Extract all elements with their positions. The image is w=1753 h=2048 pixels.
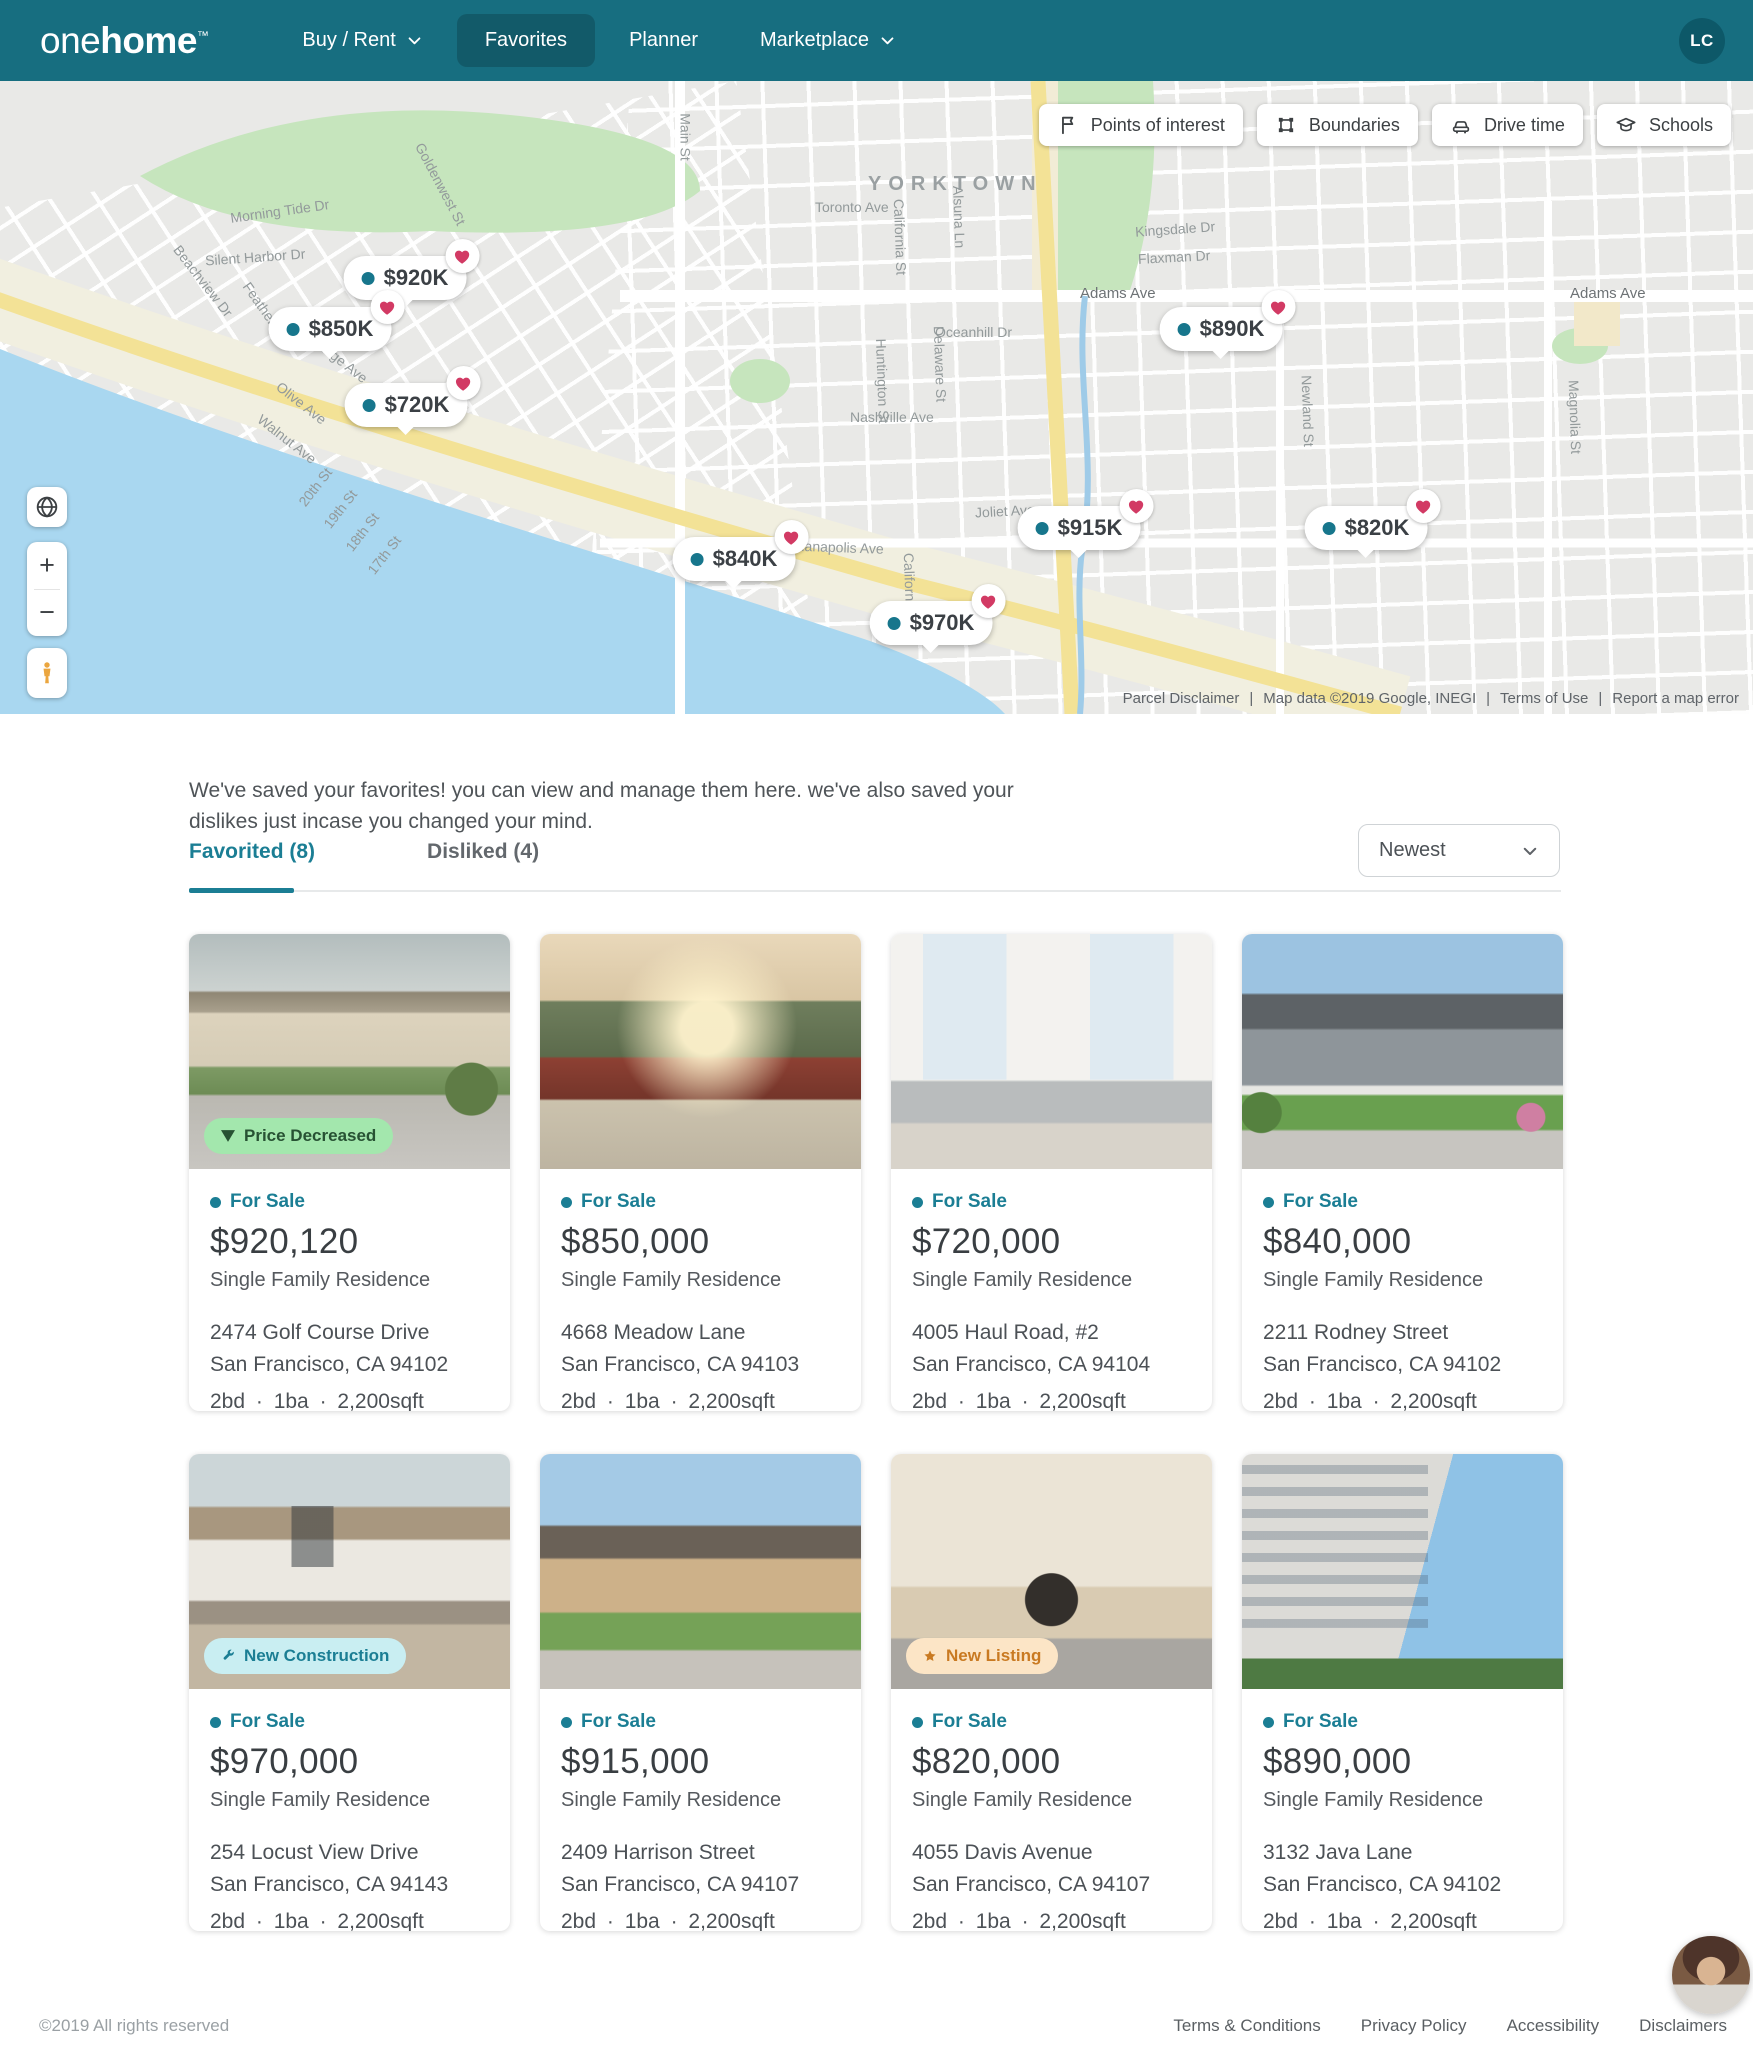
heart-icon bbox=[453, 247, 472, 266]
property-photo bbox=[1242, 1454, 1563, 1689]
schools-button[interactable]: Schools bbox=[1597, 104, 1731, 146]
map-price-pin[interactable]: $915K bbox=[1018, 506, 1141, 550]
pin-tail bbox=[1070, 549, 1088, 558]
street-label: Magnolia St bbox=[1566, 380, 1585, 454]
street-label: Newland St bbox=[1299, 375, 1317, 447]
user-avatar[interactable]: LC bbox=[1679, 18, 1725, 64]
favorite-button[interactable] bbox=[813, 1928, 840, 1931]
property-address: 4005 Haul Road, #2San Francisco, CA 9410… bbox=[912, 1317, 1191, 1381]
thumbs-down-icon bbox=[760, 1928, 787, 1931]
separator: | bbox=[1249, 690, 1253, 707]
nav-buy-rent[interactable]: Buy / Rent bbox=[274, 14, 450, 67]
favorite-button[interactable] bbox=[813, 1408, 840, 1411]
copyright-text: ©2019 All rights reserved bbox=[39, 2016, 229, 2036]
globe-icon bbox=[34, 494, 60, 520]
match-score: 82% bbox=[210, 1410, 285, 1412]
listing-price: $840,000 bbox=[1263, 1222, 1542, 1262]
house-icon bbox=[561, 1411, 583, 1412]
street-label: Adams Ave bbox=[1080, 285, 1156, 302]
tab-divider bbox=[189, 890, 1561, 892]
property-card[interactable]: For Sale $850,000 Single Family Residenc… bbox=[540, 934, 861, 1411]
street-label: Alsuna Ln bbox=[950, 186, 968, 249]
pin-dot-icon bbox=[1178, 323, 1191, 336]
property-address: 3132 Java LaneSan Francisco, CA 94102 bbox=[1263, 1837, 1542, 1901]
status-dot-icon bbox=[912, 1717, 923, 1728]
heart-icon bbox=[1515, 1408, 1542, 1411]
tab-disliked[interactable]: Disliked (4) bbox=[427, 840, 539, 864]
chevron-down-icon bbox=[1521, 842, 1539, 860]
favorite-button[interactable] bbox=[1164, 1928, 1191, 1931]
dislike-button[interactable] bbox=[409, 1928, 436, 1931]
favorite-button[interactable] bbox=[1515, 1928, 1542, 1931]
house-icon bbox=[912, 1931, 934, 1932]
property-card-grid: Price Decreased For Sale $920,120 Single… bbox=[189, 934, 1563, 1931]
map-price-pin[interactable]: $850K bbox=[269, 307, 392, 351]
dislike-button[interactable] bbox=[409, 1408, 436, 1411]
property-type: Single Family Residence bbox=[561, 1269, 840, 1292]
flag-icon bbox=[1057, 114, 1079, 136]
favorite-button[interactable] bbox=[462, 1928, 489, 1931]
map-tools: Points of interest Boundaries Drive time… bbox=[1039, 104, 1731, 146]
heart-badge bbox=[774, 520, 808, 554]
pin-tail bbox=[321, 350, 339, 359]
thumbs-down-icon bbox=[409, 1928, 436, 1931]
triangle-down-icon bbox=[221, 1129, 235, 1143]
map-price-pin[interactable]: $970K bbox=[870, 601, 993, 645]
listing-price: $920,120 bbox=[210, 1222, 489, 1262]
property-photo bbox=[1242, 934, 1563, 1169]
heart-icon bbox=[813, 1408, 840, 1411]
accessibility-link[interactable]: Accessibility bbox=[1507, 2016, 1600, 2036]
street-label: Nashville Ave bbox=[850, 409, 934, 425]
favorites-section: We've saved your favorites! you can view… bbox=[0, 714, 1753, 2048]
street-label: Adams Ave bbox=[1570, 285, 1646, 302]
listing-status: For Sale bbox=[912, 1711, 1191, 1733]
status-dot-icon bbox=[210, 1717, 221, 1728]
main-nav: Buy / Rent Favorites Planner Marketplace bbox=[274, 14, 924, 67]
property-photo: New Listing bbox=[891, 1454, 1212, 1689]
property-address: 254 Locust View DriveSan Francisco, CA 9… bbox=[210, 1837, 489, 1901]
dislike-button[interactable] bbox=[1111, 1408, 1138, 1411]
listing-status: For Sale bbox=[210, 1191, 489, 1213]
nav-favorites[interactable]: Favorites bbox=[457, 14, 595, 67]
street-label: Main St bbox=[678, 113, 694, 160]
property-address: 4055 Davis AvenueSan Francisco, CA 94107 bbox=[912, 1837, 1191, 1901]
graduation-cap-icon bbox=[1615, 114, 1637, 136]
zoom-in-button[interactable]: + bbox=[27, 543, 67, 589]
map-price-pin[interactable]: $820K bbox=[1305, 506, 1428, 550]
thumbs-down-icon bbox=[1462, 1408, 1489, 1411]
street-label: Toronto Ave bbox=[815, 199, 889, 215]
drive-time-button[interactable]: Drive time bbox=[1432, 104, 1583, 146]
pin-tail bbox=[397, 426, 415, 435]
property-card[interactable]: New Construction For Sale $970,000 Singl… bbox=[189, 1454, 510, 1931]
heart-badge bbox=[445, 239, 479, 273]
thumbs-down-icon bbox=[1462, 1928, 1489, 1931]
nav-marketplace[interactable]: Marketplace bbox=[732, 14, 924, 67]
terms-of-use-link[interactable]: Terms of Use bbox=[1500, 690, 1588, 707]
card-actions bbox=[760, 1408, 840, 1411]
zoom-out-button[interactable]: − bbox=[27, 590, 67, 636]
disclaimers-link[interactable]: Disclaimers bbox=[1639, 2016, 1727, 2036]
top-navigation-bar: onehome™ Buy / Rent Favorites Planner Ma… bbox=[0, 0, 1753, 81]
map-data-credit: Map data ©2019 Google, INEGI bbox=[1263, 690, 1476, 707]
separator: | bbox=[1486, 690, 1490, 707]
match-score: 76% bbox=[561, 1930, 636, 1932]
match-score: 88% bbox=[561, 1410, 636, 1412]
nav-planner[interactable]: Planner bbox=[601, 14, 726, 67]
property-address: 2474 Golf Course DriveSan Francisco, CA … bbox=[210, 1317, 489, 1381]
report-map-error-link[interactable]: Report a map error bbox=[1612, 690, 1739, 707]
heart-icon bbox=[378, 298, 397, 317]
chevron-down-icon bbox=[879, 32, 896, 49]
street-label: Delaware St bbox=[931, 326, 950, 403]
pin-dot-icon bbox=[362, 272, 375, 285]
dislike-button[interactable] bbox=[760, 1928, 787, 1931]
listing-status: For Sale bbox=[561, 1711, 840, 1733]
dislike-button[interactable] bbox=[1111, 1928, 1138, 1931]
listing-price: $850,000 bbox=[561, 1222, 840, 1262]
card-actions bbox=[409, 1408, 489, 1411]
pin-dot-icon bbox=[1036, 522, 1049, 535]
match-score: 90% bbox=[1263, 1410, 1338, 1412]
heart-badge bbox=[446, 366, 480, 400]
tab-favorited[interactable]: Favorited (8) bbox=[189, 840, 315, 864]
new-construction-badge: New Construction bbox=[204, 1638, 406, 1674]
street-label: California St bbox=[891, 199, 910, 276]
pin-tail bbox=[725, 580, 743, 589]
chevron-down-icon bbox=[406, 32, 423, 49]
footer-links: Terms & Conditions Privacy Policy Access… bbox=[1173, 2016, 1727, 2036]
property-photo: Price Decreased bbox=[189, 934, 510, 1169]
heart-icon bbox=[1164, 1408, 1191, 1411]
boundaries-button[interactable]: Boundaries bbox=[1257, 104, 1418, 146]
page-footer: ©2019 All rights reserved Terms & Condit… bbox=[39, 2016, 1727, 2036]
wrench-icon bbox=[221, 1649, 235, 1663]
separator: | bbox=[1598, 690, 1602, 707]
tabs: Favorited (8) Disliked (4) bbox=[189, 840, 539, 864]
property-card[interactable]: For Sale $915,000 Single Family Residenc… bbox=[540, 1454, 861, 1931]
new-listing-badge: New Listing bbox=[906, 1638, 1058, 1674]
boundary-icon bbox=[1275, 114, 1297, 136]
status-dot-icon bbox=[1263, 1197, 1274, 1208]
price-decreased-badge: Price Decreased bbox=[204, 1118, 393, 1154]
thumbs-down-icon bbox=[1111, 1408, 1138, 1411]
property-address: 2211 Rodney StreetSan Francisco, CA 9410… bbox=[1263, 1317, 1542, 1381]
card-actions bbox=[1462, 1408, 1542, 1411]
listing-price: $890,000 bbox=[1263, 1742, 1542, 1782]
status-dot-icon bbox=[561, 1197, 572, 1208]
intro-text: We've saved your favorites! you can view… bbox=[189, 775, 1034, 837]
live-chat-avatar[interactable] bbox=[1672, 1936, 1750, 2014]
property-photo: New Construction bbox=[189, 1454, 510, 1689]
star-icon bbox=[923, 1649, 937, 1663]
listing-price: $720,000 bbox=[912, 1222, 1191, 1262]
property-address: 4668 Meadow LaneSan Francisco, CA 94103 bbox=[561, 1317, 840, 1381]
heart-badge bbox=[1119, 489, 1153, 523]
heart-icon bbox=[462, 1408, 489, 1411]
house-icon bbox=[1263, 1931, 1285, 1932]
listing-status: For Sale bbox=[1263, 1711, 1542, 1733]
card-actions bbox=[1111, 1928, 1191, 1931]
card-actions bbox=[409, 1928, 489, 1931]
pin-dot-icon bbox=[691, 553, 704, 566]
property-type: Single Family Residence bbox=[561, 1789, 840, 1812]
house-icon bbox=[912, 1411, 934, 1412]
map-zoom-control: + − bbox=[27, 542, 67, 636]
listing-status: For Sale bbox=[210, 1711, 489, 1733]
map-price-pin[interactable]: $890K bbox=[1160, 307, 1283, 351]
onehome-favorites-page: onehome™ Buy / Rent Favorites Planner Ma… bbox=[0, 0, 1753, 2048]
street-view-pegman-button[interactable] bbox=[27, 648, 67, 698]
heart-icon bbox=[1269, 298, 1288, 317]
pin-dot-icon bbox=[1323, 522, 1336, 535]
house-icon bbox=[1263, 1411, 1285, 1412]
privacy-policy-link[interactable]: Privacy Policy bbox=[1361, 2016, 1467, 2036]
heart-icon bbox=[1414, 497, 1433, 516]
dislike-button[interactable] bbox=[1462, 1928, 1489, 1931]
thumbs-down-icon bbox=[1111, 1928, 1138, 1931]
property-card[interactable]: For Sale $890,000 Single Family Residenc… bbox=[1242, 1454, 1563, 1931]
property-photo bbox=[540, 934, 861, 1169]
listing-status: For Sale bbox=[1263, 1191, 1542, 1213]
property-photo bbox=[891, 934, 1212, 1169]
pin-dot-icon bbox=[888, 617, 901, 630]
favorite-button[interactable] bbox=[1164, 1408, 1191, 1411]
match-score: 92% bbox=[1263, 1930, 1338, 1932]
favorite-button[interactable] bbox=[1515, 1408, 1542, 1411]
property-type: Single Family Residence bbox=[912, 1269, 1191, 1292]
property-type: Single Family Residence bbox=[210, 1789, 489, 1812]
listing-price: $970,000 bbox=[210, 1742, 489, 1782]
pin-tail bbox=[1357, 549, 1375, 558]
thumbs-down-icon bbox=[760, 1408, 787, 1411]
heart-icon bbox=[1515, 1928, 1542, 1931]
heart-icon bbox=[782, 528, 801, 547]
match-score: 80% bbox=[912, 1930, 987, 1932]
property-type: Single Family Residence bbox=[912, 1789, 1191, 1812]
map-canvas[interactable]: YORKTOWN Goldenwest St Morning Tide Dr S… bbox=[0, 81, 1753, 714]
card-actions bbox=[760, 1928, 840, 1931]
status-dot-icon bbox=[210, 1197, 221, 1208]
heart-icon bbox=[1164, 1928, 1191, 1931]
pin-dot-icon bbox=[363, 399, 376, 412]
map-price-pin[interactable]: $920K bbox=[344, 256, 467, 300]
parcel-disclaimer-link[interactable]: Parcel Disclaimer bbox=[1123, 690, 1240, 707]
car-icon bbox=[1450, 114, 1472, 136]
sort-dropdown[interactable]: Newest bbox=[1358, 824, 1560, 877]
property-address: 2409 Harrison StreetSan Francisco, CA 94… bbox=[561, 1837, 840, 1901]
property-card[interactable]: New Listing For Sale $820,000 Single Fam… bbox=[891, 1454, 1212, 1931]
status-dot-icon bbox=[1263, 1717, 1274, 1728]
property-card[interactable]: For Sale $720,000 Single Family Residenc… bbox=[891, 934, 1212, 1411]
heart-icon bbox=[1127, 497, 1146, 516]
map-attribution: Parcel Disclaimer | Map data ©2019 Googl… bbox=[1123, 690, 1739, 707]
listing-price: $820,000 bbox=[912, 1742, 1191, 1782]
heart-badge bbox=[971, 584, 1005, 618]
property-card[interactable]: For Sale $840,000 Single Family Residenc… bbox=[1242, 934, 1563, 1411]
pin-tail bbox=[922, 644, 940, 653]
match-score: 88% bbox=[210, 1930, 285, 1932]
card-actions bbox=[1462, 1928, 1542, 1931]
map-price-pin[interactable]: $720K bbox=[345, 383, 468, 427]
heart-badge bbox=[370, 290, 404, 324]
map-price-pin[interactable]: $840K bbox=[673, 537, 796, 581]
property-type: Single Family Residence bbox=[210, 1269, 489, 1292]
dislike-button[interactable] bbox=[760, 1408, 787, 1411]
pegman-icon bbox=[34, 660, 60, 686]
status-dot-icon bbox=[912, 1197, 923, 1208]
status-dot-icon bbox=[561, 1717, 572, 1728]
property-type: Single Family Residence bbox=[1263, 1789, 1542, 1812]
property-card[interactable]: Price Decreased For Sale $920,120 Single… bbox=[189, 934, 510, 1411]
terms-and-conditions-link[interactable]: Terms & Conditions bbox=[1173, 2016, 1320, 2036]
pin-dot-icon bbox=[287, 323, 300, 336]
house-icon bbox=[210, 1931, 232, 1932]
active-tab-indicator bbox=[189, 888, 294, 893]
card-actions bbox=[1111, 1408, 1191, 1411]
thumbs-down-icon bbox=[409, 1408, 436, 1411]
favorite-button[interactable] bbox=[462, 1408, 489, 1411]
heart-icon bbox=[454, 374, 473, 393]
pin-tail bbox=[1212, 350, 1230, 359]
dislike-button[interactable] bbox=[1462, 1408, 1489, 1411]
listing-status: For Sale bbox=[912, 1191, 1191, 1213]
match-score: 79% bbox=[912, 1410, 987, 1412]
listing-price: $915,000 bbox=[561, 1742, 840, 1782]
listing-status: For Sale bbox=[561, 1191, 840, 1213]
heart-icon bbox=[462, 1928, 489, 1931]
onehome-logo[interactable]: onehome™ bbox=[40, 20, 208, 62]
property-photo bbox=[540, 1454, 861, 1689]
map-layers-globe-button[interactable] bbox=[27, 487, 67, 527]
heart-icon bbox=[813, 1928, 840, 1931]
house-icon bbox=[210, 1411, 232, 1412]
heart-icon bbox=[979, 592, 998, 611]
house-icon bbox=[561, 1931, 583, 1932]
heart-badge bbox=[1406, 489, 1440, 523]
points-of-interest-button[interactable]: Points of interest bbox=[1039, 104, 1243, 146]
heart-badge bbox=[1261, 290, 1295, 324]
property-type: Single Family Residence bbox=[1263, 1269, 1542, 1292]
